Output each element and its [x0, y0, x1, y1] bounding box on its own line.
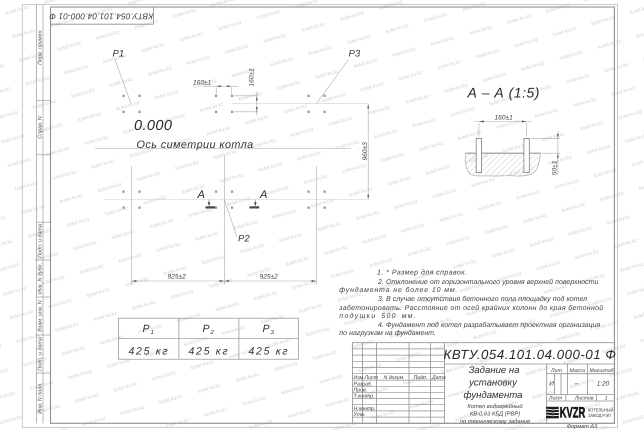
svg-text:50±1: 50±1	[551, 160, 558, 175]
svg-text:установку: установку	[468, 377, 518, 388]
svg-text:2. Отклонение от горизонтал: 2. Отклонение от горизонтального уровня …	[377, 278, 599, 286]
svg-text:160±1: 160±1	[249, 68, 256, 87]
svg-text:Листов: Листов	[574, 396, 594, 402]
svg-text:Подп. и дата: Подп. и дата	[37, 224, 43, 258]
svg-text:Дата: Дата	[431, 375, 446, 381]
svg-text:1:20: 1:20	[597, 381, 610, 388]
svg-text:Задание на: Задание на	[468, 365, 519, 376]
svg-text:425 кг: 425 кг	[189, 346, 230, 358]
svg-text:Инв. N подл.: Инв. N подл.	[37, 382, 43, 414]
svg-text:160±1: 160±1	[495, 114, 514, 121]
svg-text:Подп. и дата: Подп. и дата	[37, 337, 43, 371]
svg-text:P: P	[203, 323, 210, 335]
svg-text:1: 1	[151, 329, 154, 336]
svg-text:подушки 500 мм.: подушки 500 мм.	[339, 312, 417, 320]
svg-text:4. Фундамент под котел раз: 4. Фундамент под котел разрабатывает про…	[378, 321, 601, 329]
svg-text:Разраб.: Разраб.	[354, 381, 373, 387]
svg-text:Пров.: Пров.	[354, 387, 368, 393]
svg-text:по нагрузкам на фундамент.: по нагрузкам на фундамент.	[339, 329, 436, 337]
svg-text:960±3: 960±3	[362, 142, 369, 161]
svg-text:3. В случае отсутствия бет: 3. В случае отсутствия бетонного пола пл…	[378, 295, 587, 303]
svg-text:Утв.: Утв.	[354, 412, 366, 418]
svg-text:Подп.: Подп.	[414, 375, 428, 381]
svg-text:Масса: Масса	[570, 368, 585, 374]
svg-text:N докум.: N докум.	[384, 375, 405, 381]
svg-text:2: 2	[210, 329, 215, 336]
svg-text:Ось симетрии котла: Ось симетрии котла	[137, 139, 254, 151]
svg-text:P: P	[143, 323, 150, 335]
svg-text:КВТУ.054.101.04.000-01 Ф: КВТУ.054.101.04.000-01 Ф	[49, 11, 153, 21]
svg-text:1. * Размер для справок.: 1. * Размер для справок.	[377, 268, 467, 276]
svg-text:KVZR: KVZR	[560, 405, 586, 422]
svg-text:Перв. примен.: Перв. примен.	[37, 29, 43, 65]
svg-text:И: И	[549, 381, 554, 388]
svg-text:P3: P3	[349, 49, 361, 60]
svg-text:Взам. инв. N: Взам. инв. N	[37, 300, 43, 332]
svg-text:А: А	[259, 189, 267, 201]
svg-text:Справ. N: Справ. N	[37, 116, 43, 139]
svg-text:0.000: 0.000	[134, 118, 172, 134]
svg-text:Котел водогрейный: Котел водогрейный	[467, 403, 523, 410]
svg-text:Изм.Лист: Изм.Лист	[354, 375, 379, 381]
svg-text:925±2: 925±2	[260, 273, 279, 280]
svg-text:фундамента не более 10 мм.: фундамента не более 10 мм.	[339, 286, 458, 294]
svg-text:P: P	[263, 323, 270, 335]
svg-text:1: 1	[605, 396, 608, 402]
svg-text:Инв. N дубл.: Инв. N дубл.	[37, 263, 43, 294]
svg-text:Лист: Лист	[548, 396, 563, 402]
svg-text:P1: P1	[113, 49, 125, 60]
svg-text:Т.контр.: Т.контр.	[354, 394, 375, 400]
svg-text:Масштаб: Масштаб	[590, 368, 615, 374]
svg-text:КВТУ.054.101.04.000-01 Ф: КВТУ.054.101.04.000-01 Ф	[444, 347, 617, 362]
svg-text:Лит.: Лит.	[550, 368, 563, 374]
svg-text:фундамента: фундамента	[464, 390, 523, 401]
svg-text:КВ-0,63 КБД (РВР): КВ-0,63 КБД (РВР)	[470, 411, 520, 418]
svg-text:Формат А3: Формат А3	[567, 424, 598, 430]
svg-text:925±2: 925±2	[168, 273, 187, 280]
svg-text:забетонировать. Расстояние о: забетонировать. Расстояние от осей крайн…	[338, 304, 603, 312]
svg-text:А – А (1:5): А – А (1:5)	[467, 85, 540, 101]
svg-text:P2: P2	[238, 234, 250, 245]
svg-text:ЗАВОД РЭП: ЗАВОД РЭП	[588, 413, 611, 418]
svg-text:по техническому задание: по техническому задание	[460, 418, 531, 425]
svg-text:425 кг: 425 кг	[249, 346, 290, 358]
svg-text:425 кг: 425 кг	[129, 346, 170, 358]
svg-text:КОТЕЛЬНЫЙ: КОТЕЛЬНЫЙ	[588, 407, 614, 413]
svg-text:–: –	[574, 381, 579, 388]
svg-text:160±1: 160±1	[193, 80, 212, 87]
svg-text:Н.контр.: Н.контр.	[354, 406, 376, 412]
svg-text:А: А	[197, 189, 205, 201]
